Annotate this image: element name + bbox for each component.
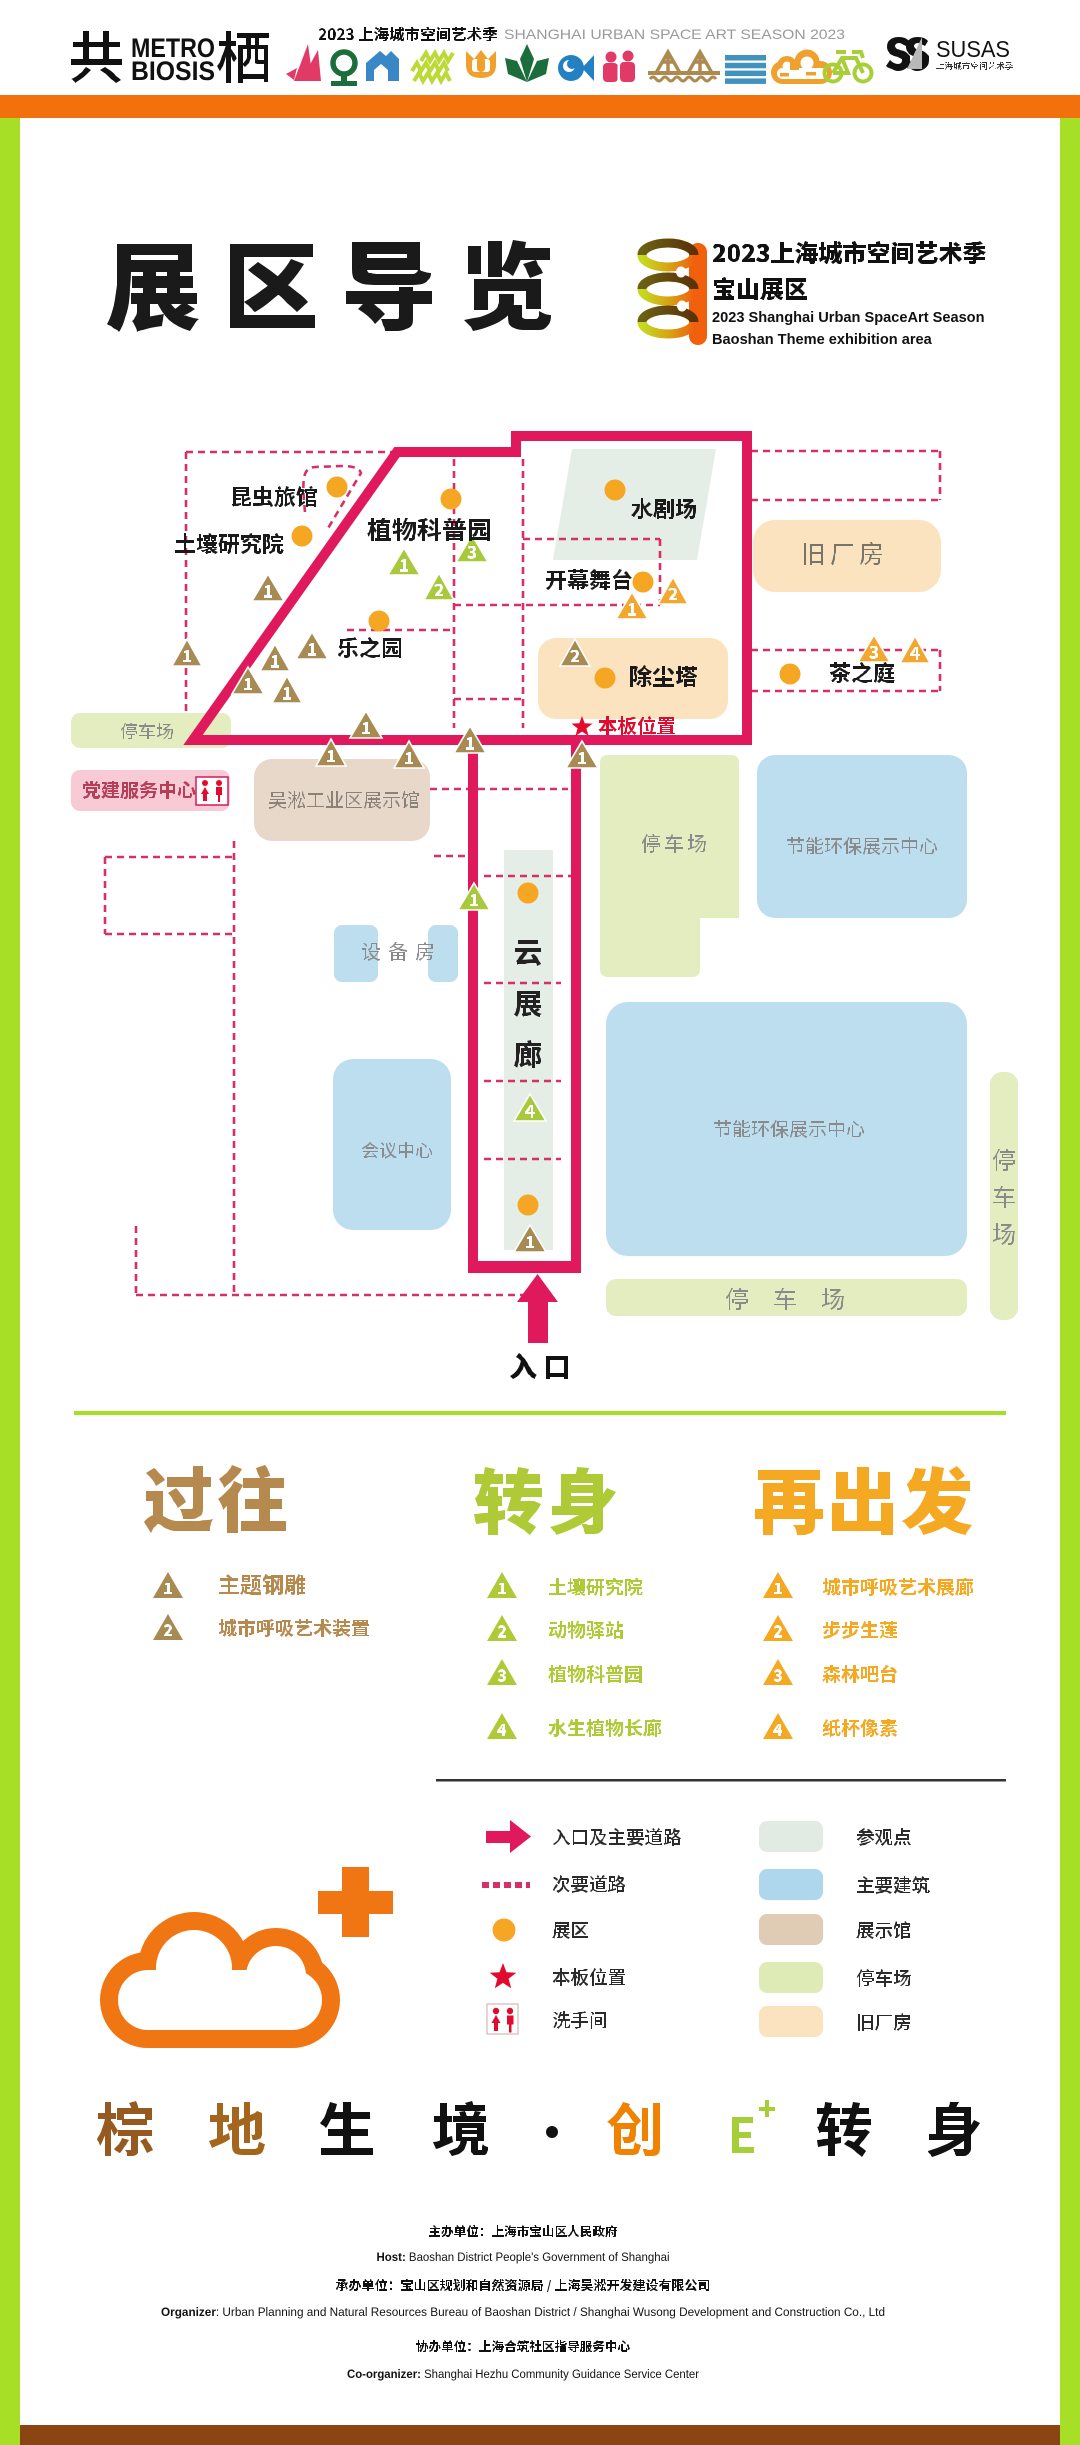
svg-text:BIOSIS: BIOSIS [131,56,215,86]
svg-text:Co-organizer: Shanghai Hezhu: Co-organizer: Shanghai Hezhu Community G… [347,2367,699,2381]
svg-text:Host: Baoshan District People: Host: Baoshan District People's Governme… [377,2250,670,2264]
svg-text:Baoshan Theme exhibition area: Baoshan Theme exhibition area [712,332,933,348]
svg-text:SUSAS: SUSAS [936,36,1010,62]
svg-text:Organizer: Urban Planning and: Organizer: Urban Planning and Natural Re… [161,2305,885,2319]
svg-text:SHANGHAI URBAN SPACE ART SEASO: SHANGHAI URBAN SPACE ART SEASON 2023 [504,26,845,42]
svg-text:2023 Shanghai Urban SpaceArt S: 2023 Shanghai Urban SpaceArt Season [712,310,985,326]
